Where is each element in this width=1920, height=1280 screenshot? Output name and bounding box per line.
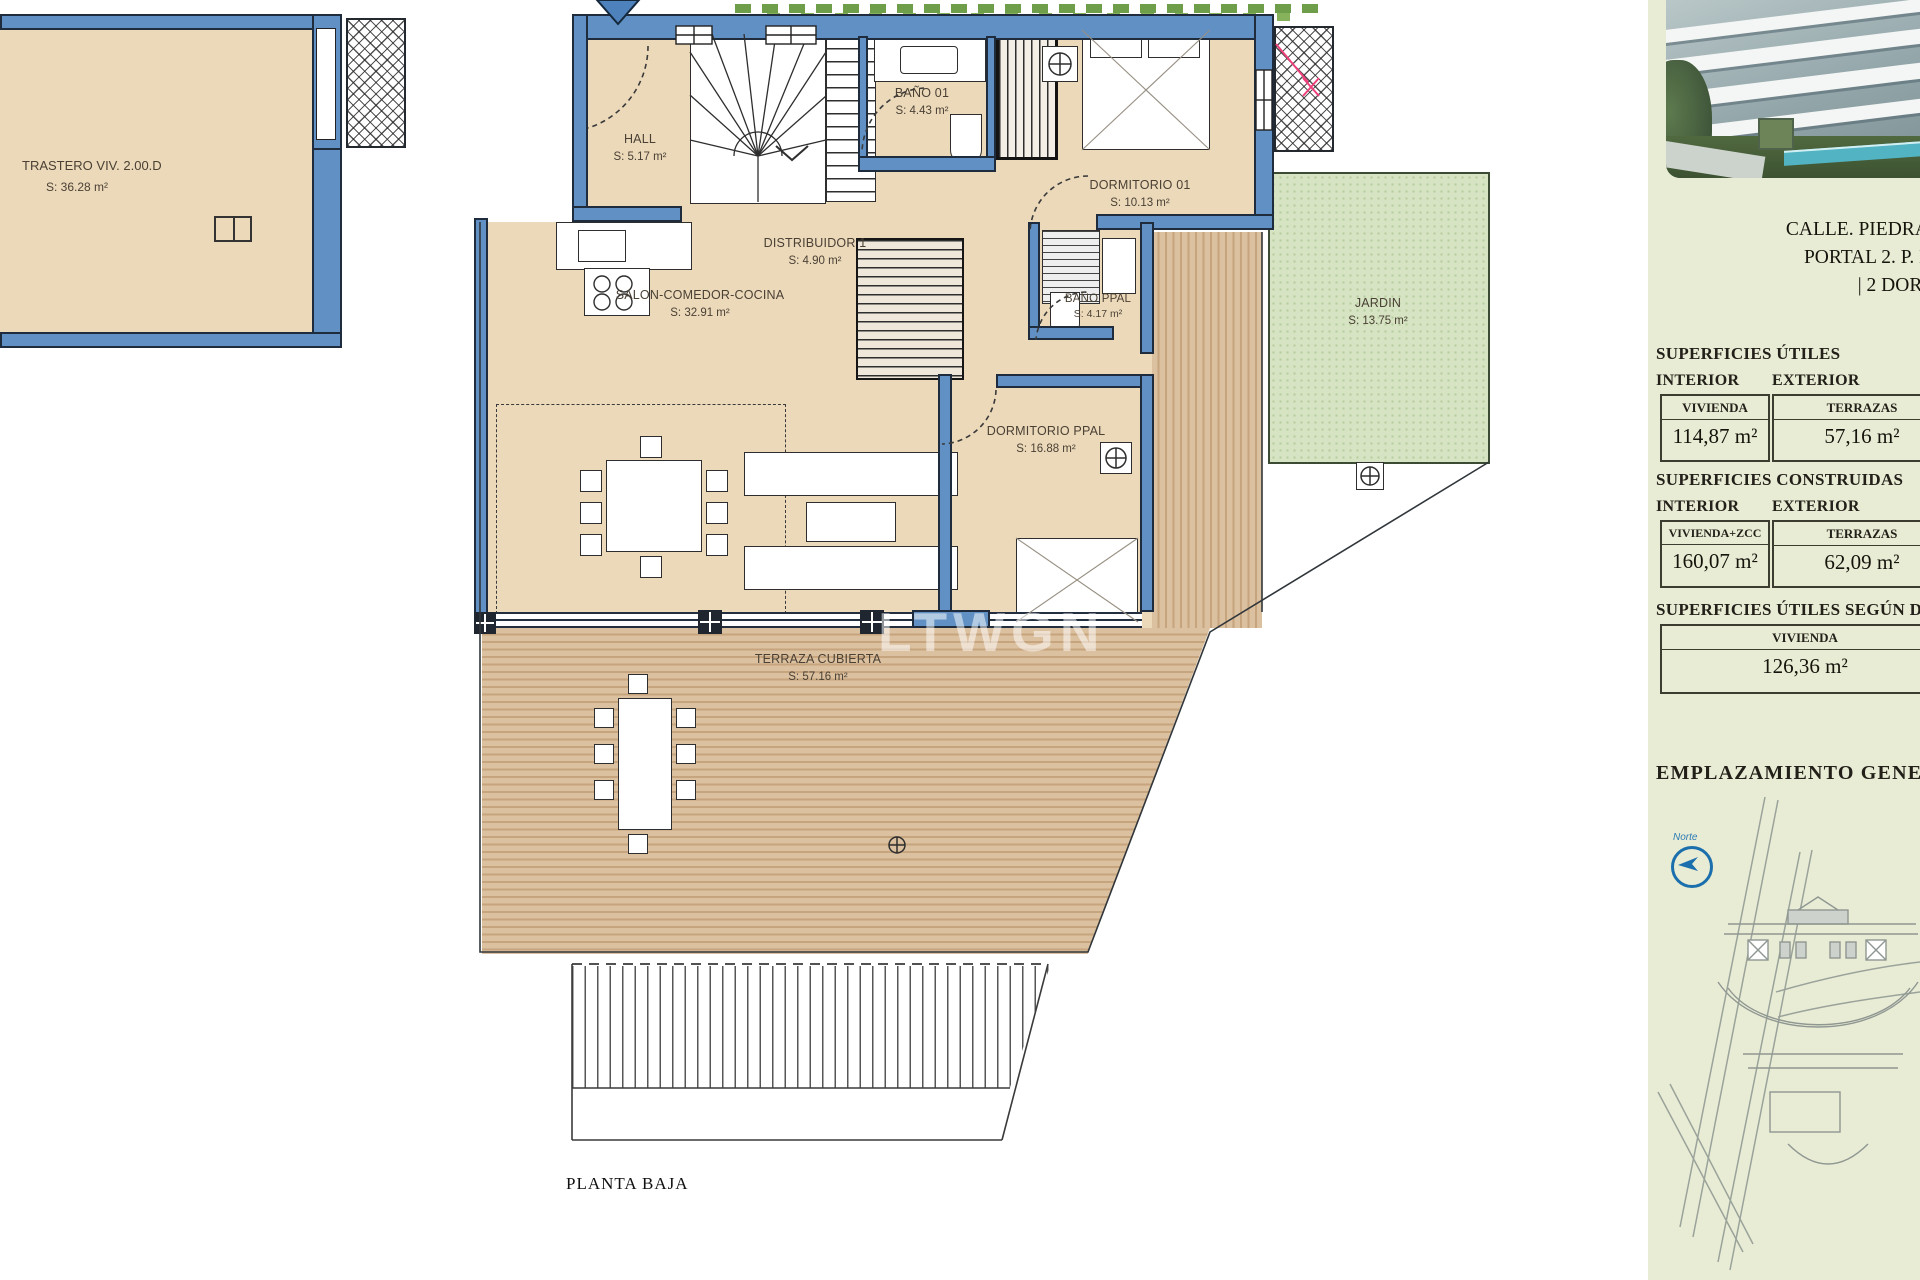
room-label-salon: SALON-COMEDOR-COCINA S: 32.91 m²	[616, 288, 785, 320]
interior-label: INTERIOR	[1656, 498, 1739, 516]
wall	[938, 374, 952, 612]
chair	[676, 708, 696, 728]
chair	[580, 470, 602, 492]
chair	[628, 834, 648, 854]
wall	[572, 14, 588, 222]
watermark: LTWGN	[878, 600, 1106, 664]
section-title-utiles: SUPERFICIES ÚTILES	[1656, 344, 1840, 364]
wall	[474, 218, 488, 630]
surface-box-terrazas: TERRAZAS 62,09 m²	[1772, 520, 1920, 588]
ac-symbol	[1042, 46, 1078, 82]
hall-closet	[856, 238, 964, 380]
surface-box-vivienda-decreto: VIVIENDA 126,36 m²	[1660, 624, 1920, 694]
drain-line	[233, 218, 235, 240]
wall	[1028, 326, 1114, 340]
section-title-construidas: SUPERFICIES CONSTRUIDAS	[1656, 470, 1903, 490]
wall	[572, 206, 682, 222]
hedge	[735, 4, 1323, 13]
sink	[1102, 238, 1136, 294]
sofa	[744, 452, 958, 496]
wall	[572, 14, 1274, 40]
wall	[0, 14, 342, 30]
room-area-trastero: S: 36.28 m²	[46, 180, 108, 194]
wall	[0, 332, 342, 348]
room-label-dormppal: DORMITORIO PPAL S: 16.88 m²	[987, 424, 1106, 456]
wall	[996, 374, 1154, 388]
wall	[1096, 214, 1274, 230]
surface-box-vivienda: VIVIENDA 114,87 m²	[1660, 394, 1770, 462]
chair	[676, 744, 696, 764]
side-deck	[1152, 232, 1262, 628]
chair	[594, 744, 614, 764]
sofa	[744, 546, 958, 590]
exterior-label: EXTERIOR	[1772, 372, 1860, 390]
stairs	[690, 34, 826, 204]
chair	[640, 436, 662, 458]
address-line: | 2 DORMI	[1652, 272, 1920, 300]
site-plan-sketch	[1648, 792, 1920, 1280]
wall	[1140, 222, 1154, 354]
chair	[580, 502, 602, 524]
interior-label: INTERIOR	[1656, 372, 1739, 390]
sink	[900, 46, 958, 74]
kitchen-sink	[578, 230, 626, 262]
chair	[594, 780, 614, 800]
section-title-decreto: SUPERFICIES ÚTILES SEGÚN DECR	[1656, 600, 1920, 620]
hatched-area	[346, 18, 406, 148]
ac-symbol	[1356, 462, 1384, 490]
wall	[312, 148, 342, 348]
roof-cube	[1758, 118, 1794, 150]
address-line: CALLE. PIEDRA PALOMA,	[1652, 216, 1920, 244]
room-label-trastero: TRASTERO VIV. 2.00.D	[22, 158, 162, 173]
chair	[676, 780, 696, 800]
drain-symbol	[214, 216, 252, 242]
chair	[706, 502, 728, 524]
chair	[706, 534, 728, 556]
section-title-emplazamiento: EMPLAZAMIENTO GENERAL	[1656, 762, 1920, 785]
pergola-area	[572, 966, 1050, 1088]
room-label-jardin: JARDIN S: 13.75 m²	[1348, 296, 1407, 328]
column-symbol	[474, 612, 496, 634]
column-symbol	[698, 610, 722, 634]
chair	[594, 708, 614, 728]
wall	[1254, 14, 1274, 228]
building-photo	[1666, 0, 1920, 178]
floor-plan-page: TRASTERO VIV. 2.00.D S: 36.28 m²	[0, 0, 1920, 1280]
chair	[628, 674, 648, 694]
coffee-table	[806, 502, 896, 542]
wall	[1028, 222, 1040, 340]
surface-box-vivienda-zcc: VIVIENDA+ZCC 160,07 m²	[1660, 520, 1770, 588]
wall	[858, 36, 868, 160]
room-label-banoppal: BAÑO PPAL S: 4.17 m²	[1065, 292, 1131, 322]
room-label-hall: HALL S: 5.17 m²	[613, 132, 666, 164]
surface-box-terrazas: TERRAZAS 57,16 m²	[1772, 394, 1920, 462]
floor-title: PLANTA BAJA	[566, 1174, 689, 1194]
chair	[640, 556, 662, 578]
address-block: CALLE. PIEDRA PALOMA, PORTAL 2. P. BAJA …	[1652, 216, 1920, 300]
room-label-bano1: BAÑO 01 S: 4.43 m²	[895, 86, 949, 118]
wall	[986, 36, 996, 160]
dining-table	[606, 460, 702, 552]
stairs-straight	[826, 34, 876, 202]
chair	[706, 470, 728, 492]
room-label-terraza: TERRAZA CUBIERTA S: 57.16 m²	[755, 652, 881, 684]
hatched-area	[1274, 26, 1334, 152]
deck-table	[618, 698, 672, 830]
wall	[1140, 374, 1154, 612]
shaft	[316, 28, 336, 140]
room-label-dormitorio1: DORMITORIO 01 S: 10.13 m²	[1090, 178, 1191, 210]
exterior-label: EXTERIOR	[1772, 498, 1860, 516]
wall	[858, 156, 996, 172]
chair	[580, 534, 602, 556]
room-label-distribuidor: DISTRIBUIDOR 1 S: 4.90 m²	[764, 236, 867, 268]
address-line: PORTAL 2. P. BAJA Y S	[1652, 244, 1920, 272]
